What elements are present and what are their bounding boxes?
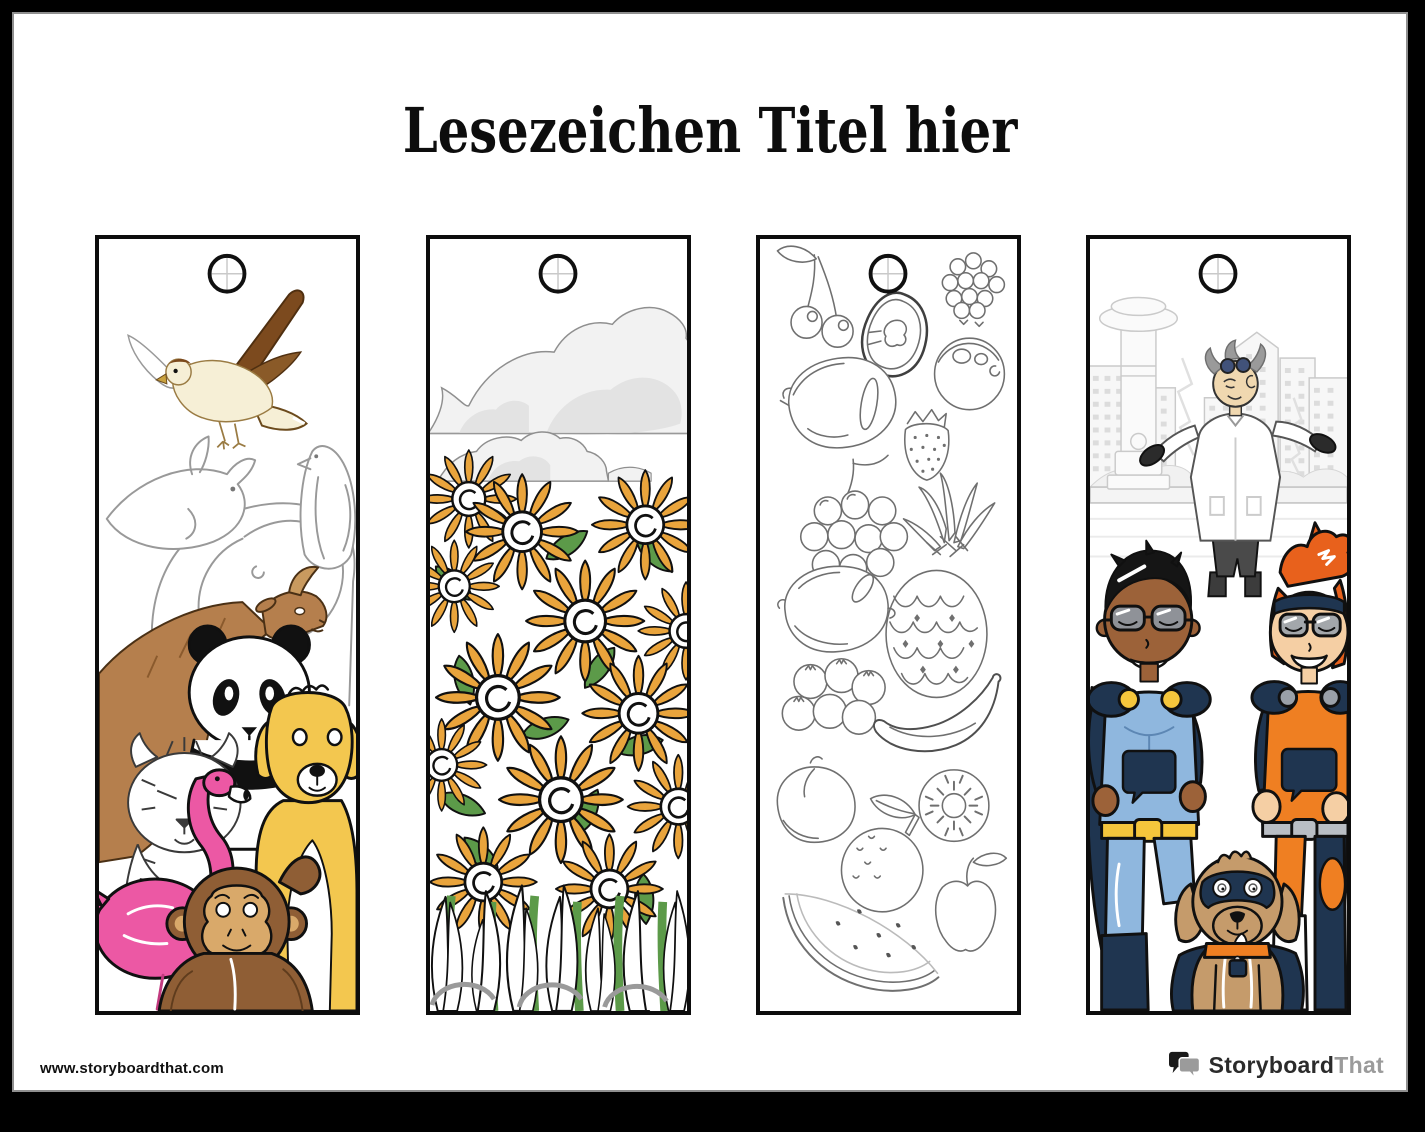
storyboardthat-logo: StoryboardThat <box>1169 1050 1384 1080</box>
bookmark-cell-superheroes[interactable] <box>1086 235 1351 1015</box>
bookmark-cell-fruits[interactable] <box>756 235 1021 1015</box>
brand-name: StoryboardThat <box>1209 1052 1384 1079</box>
monkey-illustration <box>159 857 320 1011</box>
peach-illustration <box>777 757 855 842</box>
berry-cluster-illustration <box>942 253 1004 326</box>
bookmark-worksheet-page: Lesezeichen Titel hier <box>12 12 1408 1092</box>
apple-illustration <box>936 853 1007 951</box>
website-url: www.storyboardthat.com <box>40 1060 224 1077</box>
sunflower-field-illustration <box>430 450 687 944</box>
lemon-illustration <box>778 566 895 652</box>
blueberries-illustration <box>782 659 885 734</box>
pineapple-illustration <box>886 473 995 697</box>
bookmark-cell-animals[interactable] <box>95 235 360 1015</box>
punch-hole <box>541 256 576 292</box>
strawberry-illustration <box>905 410 949 480</box>
penguin-outline-illustration <box>298 446 355 569</box>
coconut-illustration <box>935 338 1005 409</box>
punch-hole <box>210 256 245 292</box>
kiwi-illustration <box>919 770 989 841</box>
punch-hole <box>1201 256 1236 292</box>
watermelon-illustration <box>783 894 938 991</box>
speech-bubbles-icon <box>1169 1050 1201 1080</box>
bookmark-cell-sunflowers[interactable] <box>426 235 691 1015</box>
cherries-illustration <box>777 246 853 347</box>
page-title[interactable]: Lesezeichen Titel hier <box>14 100 1406 162</box>
punch-hole <box>871 256 906 292</box>
hawk-illustration <box>128 290 306 449</box>
